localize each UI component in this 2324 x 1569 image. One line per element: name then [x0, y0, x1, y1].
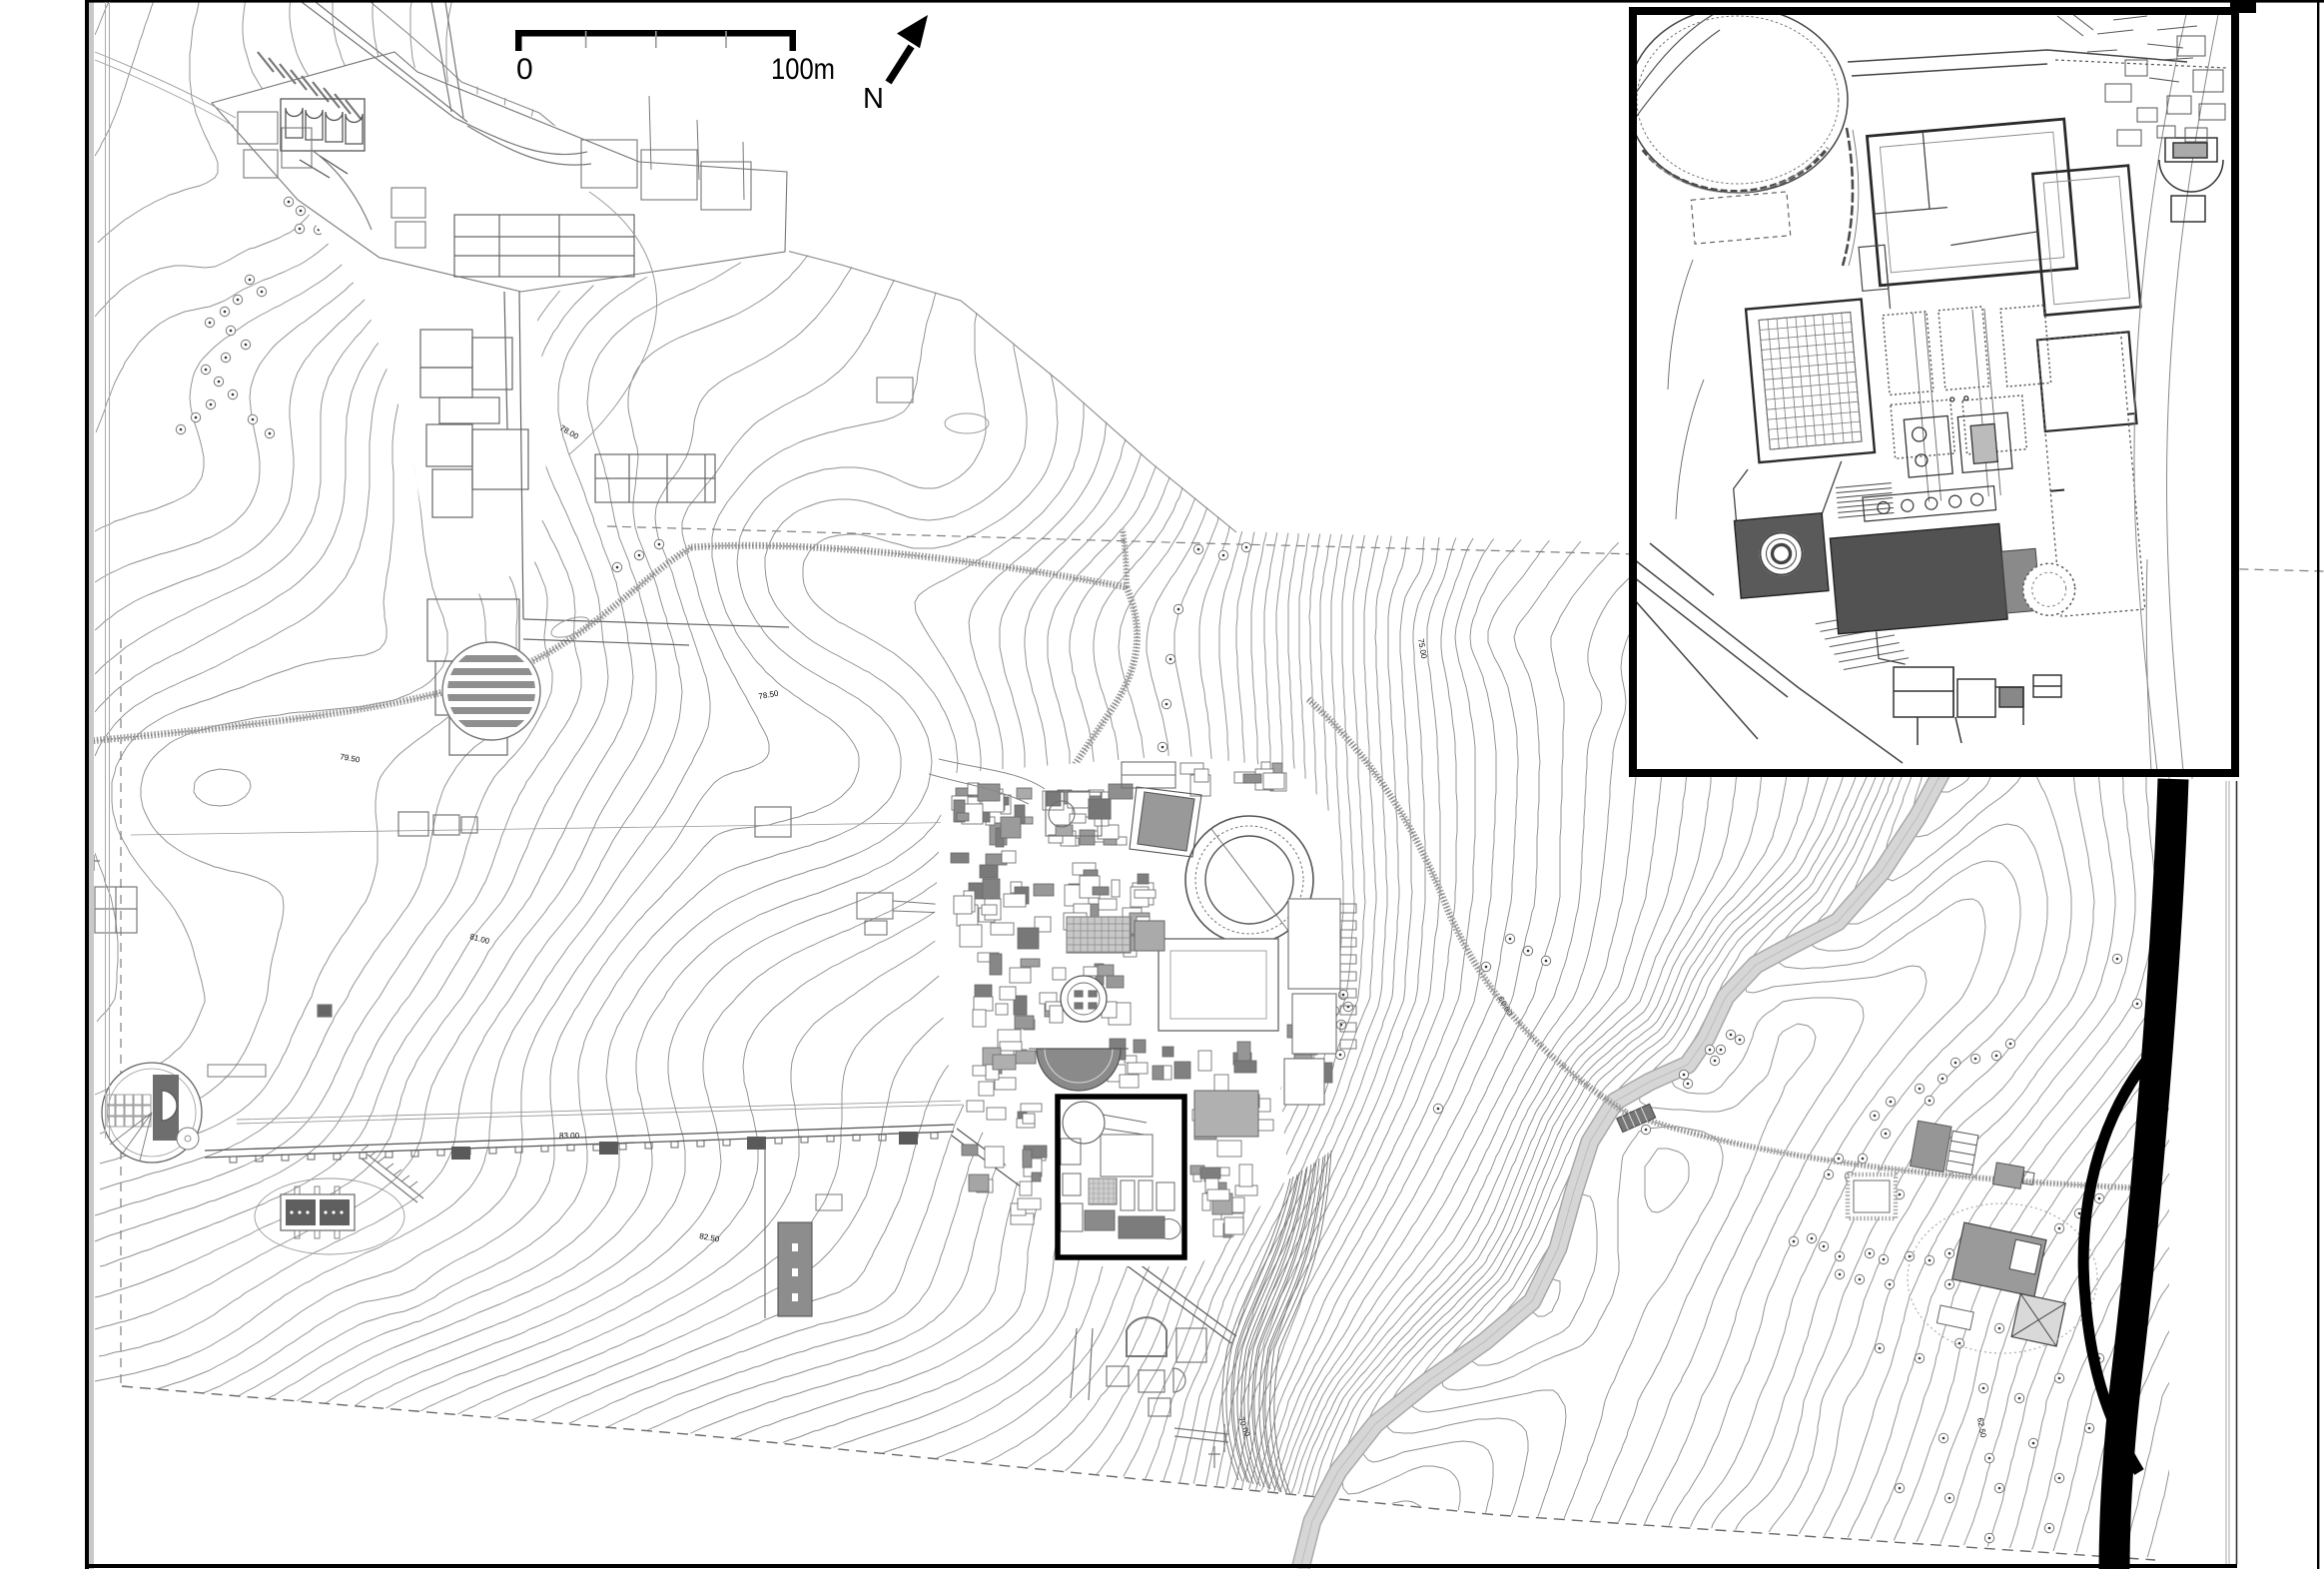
svg-text:0: 0 — [516, 53, 533, 86]
svg-text:100m: 100m — [771, 53, 835, 86]
svg-text:83.00: 83.00 — [559, 1132, 580, 1141]
svg-text:N: N — [863, 83, 884, 115]
